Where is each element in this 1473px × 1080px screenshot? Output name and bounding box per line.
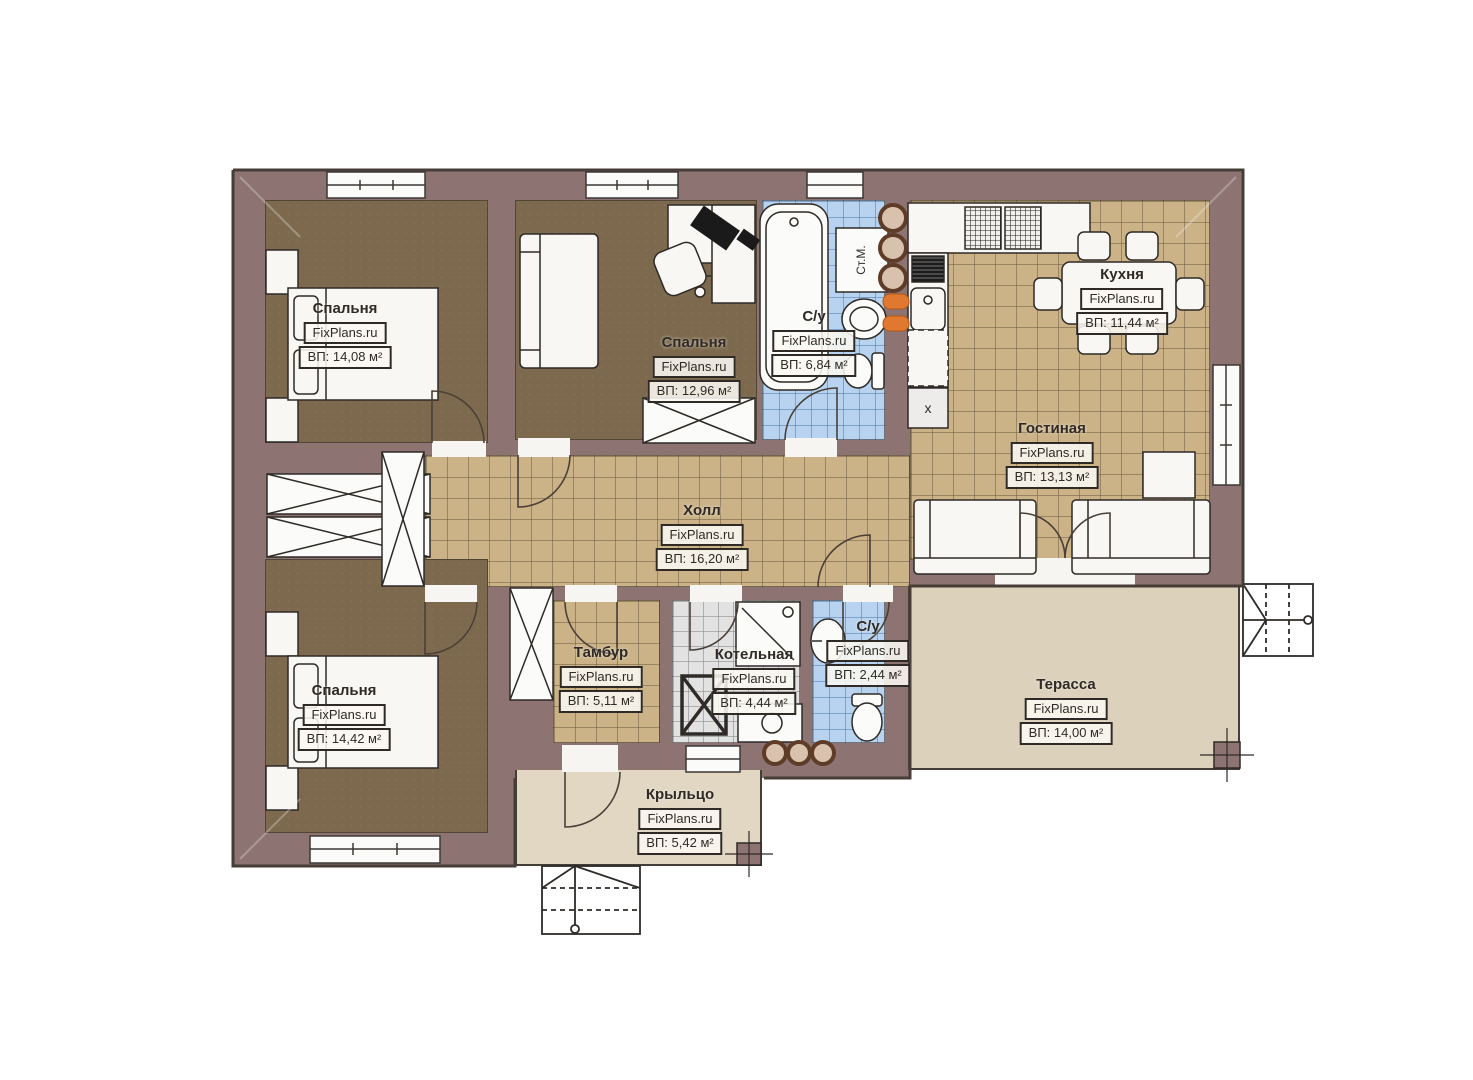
room-area: ВП: 16,20 м² [656,548,749,570]
room-name: Крыльцо [646,786,714,803]
watermark: FixPlans.ru [712,668,795,690]
room-name: Котельная [715,646,794,663]
room-label-hall: Холл FixPlans.ru ВП: 16,20 м² [656,502,749,571]
room-label-living-room: Гостиная FixPlans.ru ВП: 13,13 м² [1006,420,1099,489]
watermark: FixPlans.ru [1080,288,1163,310]
room-area: ВП: 4,44 м² [711,692,796,714]
room-area: ВП: 14,42 м² [298,728,391,750]
room-area: ВП: 2,44 м² [825,664,910,686]
room-label-kitchen: Кухня FixPlans.ru ВП: 11,44 м² [1076,266,1168,335]
room-label-bathroom-1: С/у FixPlans.ru ВП: 6,84 м² [771,308,856,377]
room-name: Гостиная [1018,420,1086,437]
watermark: FixPlans.ru [1024,698,1107,720]
room-name: С/у [856,618,879,635]
room-name: Тамбур [574,644,628,661]
room-kitchen-living-floor [910,200,1210,560]
room-name: Спальня [662,334,727,351]
room-label-bedroom-2: Спальня FixPlans.ru ВП: 12,96 м² [648,334,741,403]
room-area: ВП: 14,08 м² [299,346,392,368]
room-label-porch: Крыльцо FixPlans.ru ВП: 5,42 м² [637,786,722,855]
watermark: FixPlans.ru [303,322,386,344]
room-area: ВП: 13,13 м² [1006,466,1099,488]
room-name: Кухня [1100,266,1144,283]
room-area: ВП: 6,84 м² [771,354,856,376]
room-area: ВП: 5,11 м² [559,690,643,712]
room-label-boiler-room: Котельная FixPlans.ru ВП: 4,44 м² [711,646,796,715]
room-name: Спальня [313,300,378,317]
room-label-terrace: Терасса FixPlans.ru ВП: 14,00 м² [1020,676,1113,745]
room-name: Спальня [312,682,377,699]
watermark: FixPlans.ru [826,640,909,662]
room-label-bedroom-3: Спальня FixPlans.ru ВП: 14,42 м² [298,682,391,751]
room-area: ВП: 14,00 м² [1020,722,1113,744]
watermark: FixPlans.ru [559,666,642,688]
porch-stairs [542,866,640,934]
watermark: FixPlans.ru [638,808,721,830]
room-area: ВП: 5,42 м² [637,832,722,854]
room-name: С/у [802,308,825,325]
watermark: FixPlans.ru [660,524,743,546]
watermark: FixPlans.ru [1010,442,1093,464]
watermark: FixPlans.ru [652,356,735,378]
room-name: Терасса [1036,676,1095,693]
watermark: FixPlans.ru [302,704,385,726]
room-label-bedroom-1: Спальня FixPlans.ru ВП: 14,08 м² [299,300,392,369]
watermark: FixPlans.ru [772,330,855,352]
room-name: Холл [683,502,721,519]
room-area: ВП: 11,44 м² [1076,312,1168,334]
room-bedroom-2-floor [515,200,757,440]
room-area: ВП: 12,96 м² [648,380,741,402]
room-label-vestibule: Тамбур FixPlans.ru ВП: 5,11 м² [559,644,643,713]
terrace-stairs [1243,584,1313,656]
room-label-bathroom-2: С/у FixPlans.ru ВП: 2,44 м² [825,618,910,687]
floor-plan-canvas: Ст.М. х [0,0,1473,1080]
